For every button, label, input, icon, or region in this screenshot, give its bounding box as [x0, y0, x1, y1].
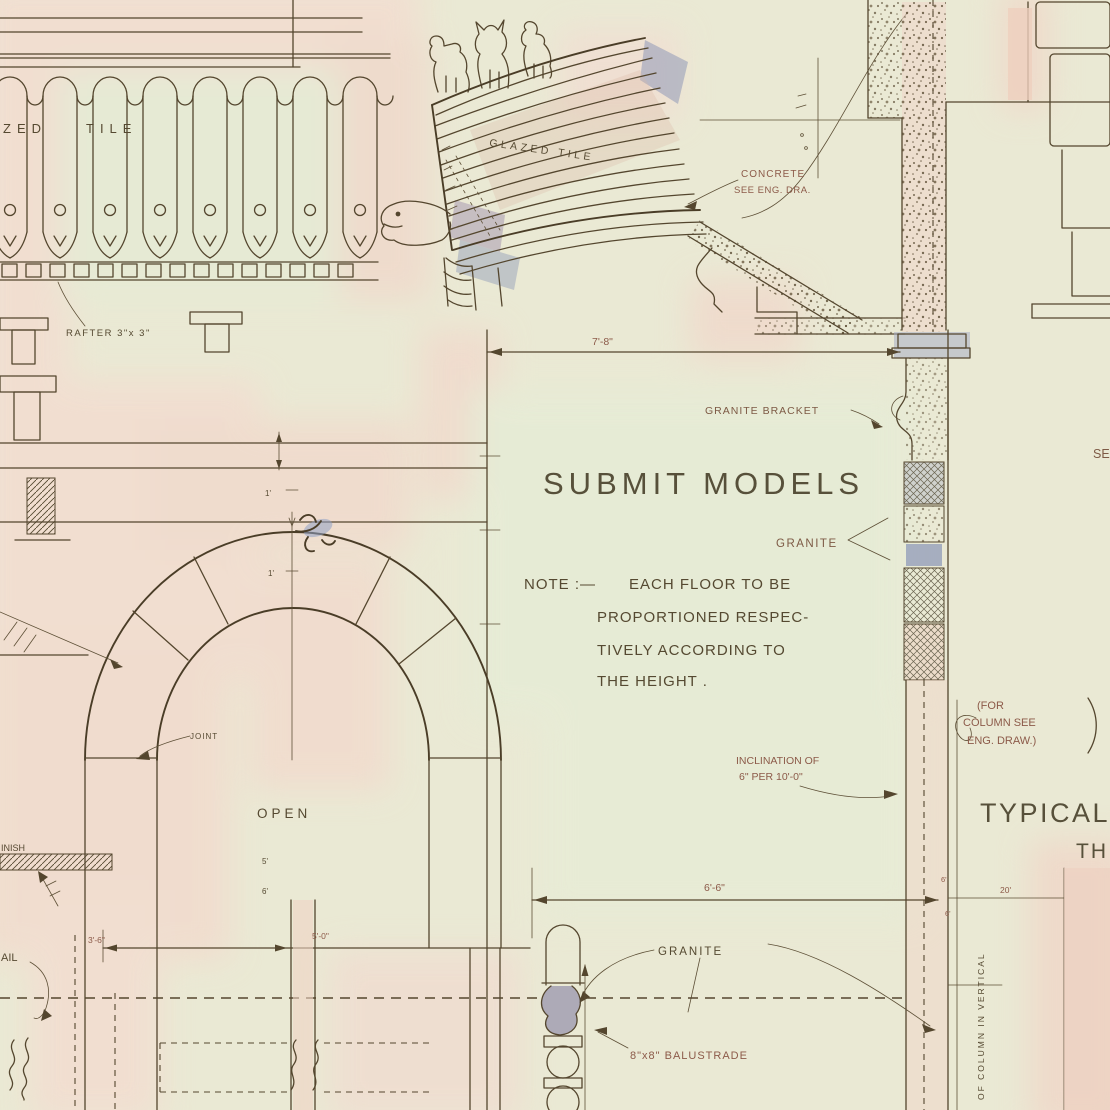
inclination-line1: INCLINATION OF: [736, 755, 819, 767]
glazed-tile-left-label-b: TILE: [86, 121, 137, 136]
architectural-drawing: GLAZED TILE: [0, 0, 1110, 1110]
note-prefix: NOTE :—: [524, 576, 596, 593]
dim-3-6-label: 3'-6": [88, 935, 105, 945]
dim-20-label: 20': [1000, 885, 1011, 895]
dim-6b-label: 6': [945, 909, 951, 918]
for-column-line3: ENG. DRAW.): [967, 735, 1036, 747]
open-label: OPEN: [257, 806, 311, 821]
concrete-leader: [688, 180, 738, 204]
drawing-sheet: GLAZED TILE: [0, 0, 1110, 1110]
note-line3: TIVELY ACCORDING TO: [597, 642, 786, 659]
balustrade-leader: [598, 1032, 628, 1048]
glazed-tile-left-label-a: ZED: [3, 121, 47, 136]
wall-stipple-step: [868, 2, 902, 118]
dim-5s-label: 5': [262, 857, 268, 866]
dim-6s-label: 6': [262, 887, 268, 896]
wall-stipple: [902, 2, 946, 332]
see-cut-label: SE: [1093, 447, 1110, 461]
column-vertical-rotated-label: OF COLUMN IN VERTICAL: [976, 952, 986, 1100]
for-column-line1: (FOR: [977, 700, 1004, 712]
dim-1a-label: 1': [265, 489, 271, 498]
note-line2: PROPORTIONED RESPEC-: [597, 609, 809, 626]
dim-1b-label: 1': [268, 569, 274, 578]
dim-6-6-label: 6'-6": [704, 882, 725, 894]
balustrade-label: 8"x8" BALUSTRADE: [630, 1050, 748, 1062]
granite-column-blocks: [904, 462, 944, 680]
baluster-detail: [542, 925, 589, 1110]
granite-cap-molding: [892, 332, 970, 358]
column-dimensions: [948, 868, 1110, 1110]
rail-cut-label: AIL: [1, 952, 18, 964]
for-column-line2: COLUMN SEE: [963, 717, 1036, 729]
joint-label: JOINT: [190, 732, 218, 741]
submit-models-heading: SUBMIT MODELS: [543, 466, 864, 501]
dim-5-0-label: 5'-0": [312, 931, 329, 941]
dim-6a-label: 6': [941, 875, 947, 884]
granite-upper-label: GRANITE: [776, 538, 838, 550]
hatched-post: [27, 478, 55, 534]
dim-7-8-label: 7'-8": [592, 336, 613, 348]
note-line4: THE HEIGHT .: [597, 673, 708, 690]
concrete-label-line2: SEE ENG. DRA.: [734, 185, 811, 196]
typical-heading: TYPICAL: [980, 798, 1110, 828]
baluster-bulbs: [542, 986, 582, 1110]
granite-bracket-label: GRANITE BRACKET: [705, 405, 819, 417]
concrete-stipple-eave: [757, 318, 905, 335]
typical-heading-cont: TH: [1076, 840, 1108, 863]
inclination-line2: 6" PER 10'-0": [739, 771, 803, 783]
finish-cut-label: INISH: [1, 843, 25, 853]
finish-hatch-band: [0, 854, 112, 870]
rafter-label: RAFTER 3"x 3": [66, 328, 151, 339]
note-line1: EACH FLOOR TO BE: [629, 576, 791, 593]
granite-lower-leader-left: [581, 950, 654, 998]
quoin-blocks: [1008, 2, 1110, 318]
granite-lower-label: GRANITE: [658, 946, 723, 958]
concrete-label-line1: CONCRETE: [741, 169, 805, 180]
paren-large: [1088, 698, 1096, 753]
